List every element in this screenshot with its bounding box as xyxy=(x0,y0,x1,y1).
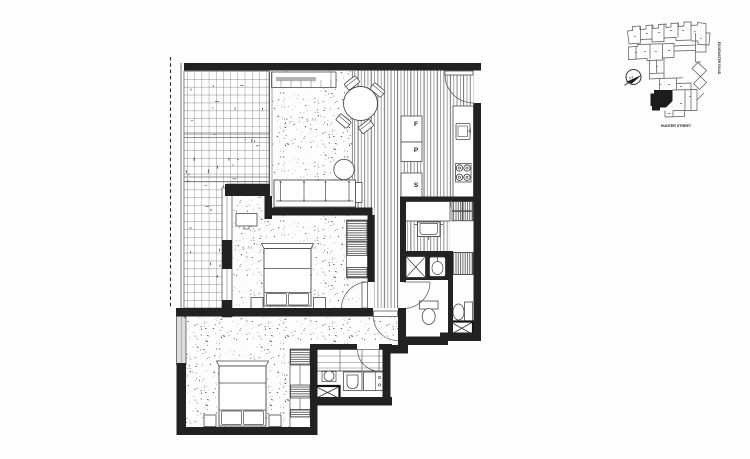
svg-text:EDGEWATER ROAD: EDGEWATER ROAD xyxy=(717,42,721,75)
svg-text:P: P xyxy=(414,147,419,154)
svg-text:HUNTER STREET: HUNTER STREET xyxy=(661,124,692,128)
svg-text:S: S xyxy=(414,182,419,189)
svg-text:F: F xyxy=(414,121,418,128)
